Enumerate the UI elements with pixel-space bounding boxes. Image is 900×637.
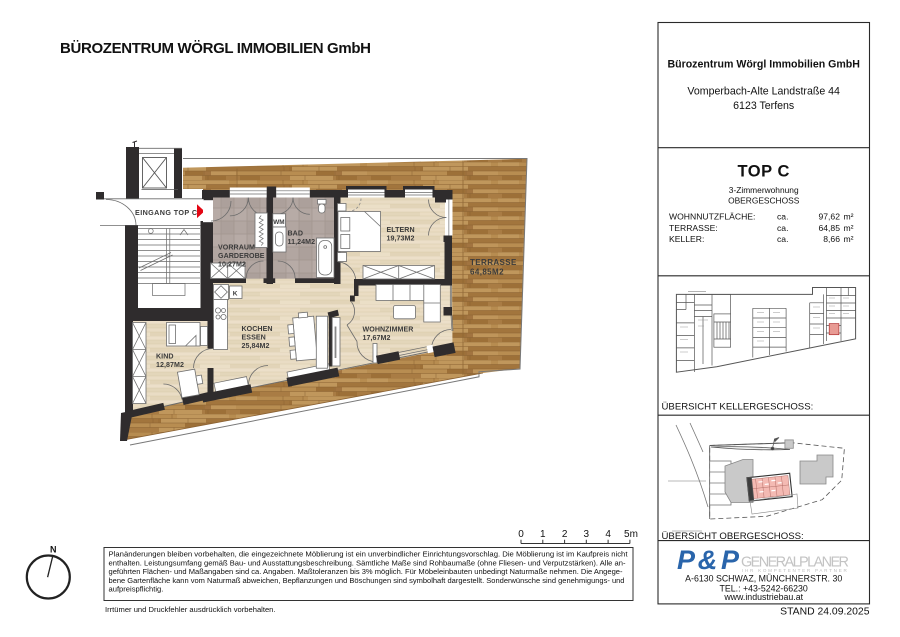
svg-text:5m: 5m [624,529,638,540]
svg-text:3: 3 [584,529,590,540]
svg-text:GARDEROBE: GARDEROBE [218,252,265,260]
svg-text:www.industriebau.at: www.industriebau.at [723,592,803,602]
svg-text:8,66: 8,66 [823,234,840,244]
svg-text:6123 Terfens: 6123 Terfens [733,100,794,112]
svg-text:KELLER:: KELLER: [669,234,704,244]
svg-text:m²: m² [844,234,854,244]
svg-text:Planänderungen bleiben vorbeha: Planänderungen bleiben vorbehalten, die … [109,550,629,559]
svg-text:BÜROZENTRUM WÖRGL IMMOBILIEN G: BÜROZENTRUM WÖRGL IMMOBILIEN GmbH [60,40,371,57]
svg-text:10,27M2: 10,27M2 [218,261,246,269]
svg-text:64,85M2: 64,85M2 [470,268,504,277]
svg-text:STAND 24.09.2025: STAND 24.09.2025 [780,607,870,618]
svg-text:WOHNNUTZFLÄCHE:: WOHNNUTZFLÄCHE: [669,212,755,222]
svg-text:TERRASSE: TERRASSE [470,258,517,267]
svg-text:Bürozentrum Wörgl Immobilien G: Bürozentrum Wörgl Immobilien GmbH [667,59,859,71]
svg-text:Vomperbach-Alte Landstraße 44: Vomperbach-Alte Landstraße 44 [687,86,840,98]
svg-text:BAD: BAD [288,230,304,238]
svg-text:m²: m² [844,223,854,233]
svg-text:ELTERN: ELTERN [387,226,415,234]
svg-text:TOP C: TOP C [738,163,790,181]
svg-text:17,67M2: 17,67M2 [363,334,391,342]
svg-text:OBERGESCHOSS: OBERGESCHOSS [728,196,800,206]
svg-text:ca.: ca. [777,234,788,244]
svg-text:ESSEN: ESSEN [242,334,266,342]
svg-text:A-6130 SCHWAZ, MÜNCHNERSTR. 30: A-6130 SCHWAZ, MÜNCHNERSTR. 30 [685,574,842,584]
svg-text:0: 0 [518,529,524,540]
svg-text:64,85: 64,85 [818,223,840,233]
svg-text:4: 4 [605,529,611,540]
svg-text:N: N [50,545,57,555]
svg-text:WM: WM [273,219,284,226]
svg-text:Irrtümer und Druckfehler ausdr: Irrtümer und Druckfehler ausdrücklich vo… [105,605,276,614]
svg-text:enthalten. Leistungsumfang gem: enthalten. Leistungsumfang gemäß Bau- un… [109,558,626,567]
svg-text:11,24M2: 11,24M2 [288,238,316,246]
svg-text:25,84M2: 25,84M2 [242,342,270,350]
svg-text:ÜBERSICHT OBERGESCHOSS:: ÜBERSICHT OBERGESCHOSS: [662,531,804,542]
svg-text:IHR KOMPETENTER PARTNER: IHR KOMPETENTER PARTNER [742,568,848,573]
svg-text:VORRAUM: VORRAUM [218,244,255,252]
svg-text:12,87M2: 12,87M2 [156,361,184,369]
svg-text:1: 1 [540,529,546,540]
svg-text:ca.: ca. [777,223,788,233]
svg-text:ÜBERSICHT KELLERGESCHOSS:: ÜBERSICHT KELLERGESCHOSS: [662,402,814,413]
svg-text:3-Zimmerwohnung: 3-Zimmerwohnung [729,185,799,195]
svg-text:KOCHEN: KOCHEN [242,325,273,333]
svg-text:TERRASSE:: TERRASSE: [669,223,718,233]
svg-text:m²: m² [844,212,854,222]
svg-text:P & P: P & P [677,545,740,575]
svg-text:aufpreispflichtig.: aufpreispflichtig. [109,585,164,594]
svg-text:ca.: ca. [777,212,788,222]
svg-text:EINGANG TOP C: EINGANG TOP C [135,208,197,217]
svg-text:bene Gartenfläche kann vom Nat: bene Gartenfläche kann vom Naturmaß abwe… [109,576,625,585]
svg-text:WOHNZIMMER: WOHNZIMMER [363,326,414,334]
svg-text:K: K [233,291,238,298]
svg-text:2: 2 [562,529,568,540]
svg-text:KIND: KIND [156,353,174,361]
svg-text:19,73M2: 19,73M2 [387,235,415,243]
svg-text:geführten Flächen- und Maßanga: geführten Flächen- und Maßangaben sind c… [109,567,623,576]
svg-text:97,62: 97,62 [818,212,840,222]
